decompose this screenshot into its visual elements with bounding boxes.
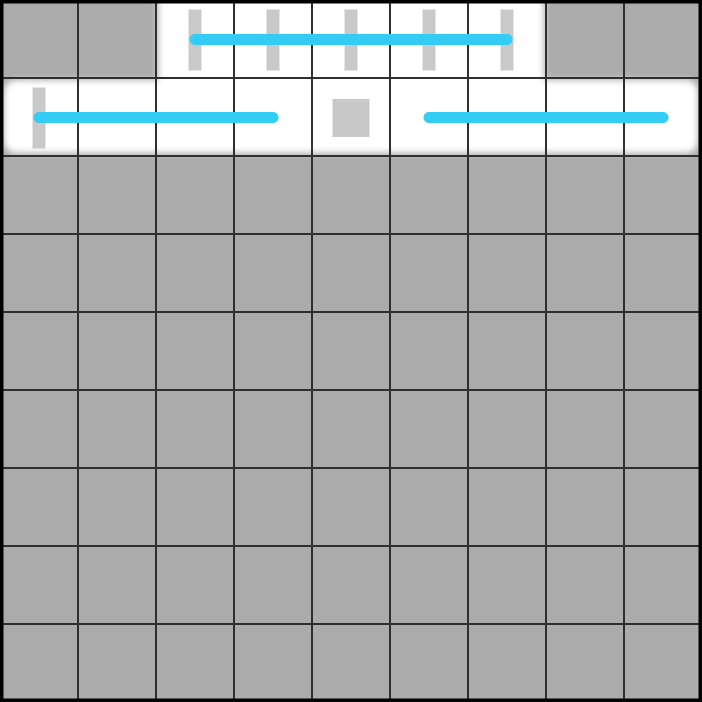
grid-cell[interactable] <box>624 624 702 702</box>
grid-cell[interactable] <box>624 390 702 468</box>
grid-cell[interactable] <box>624 468 702 546</box>
grid-cell[interactable] <box>546 234 624 312</box>
grid-cell[interactable] <box>234 78 312 156</box>
grid-cell[interactable] <box>390 624 468 702</box>
grid-cell[interactable] <box>78 312 156 390</box>
grid-cell[interactable] <box>78 0 156 78</box>
grid-cell[interactable] <box>624 156 702 234</box>
grid-cell[interactable] <box>0 312 78 390</box>
grid-cell[interactable] <box>234 390 312 468</box>
grid-cell[interactable] <box>546 468 624 546</box>
grid-cell[interactable] <box>312 78 390 156</box>
grid-cell[interactable] <box>624 234 702 312</box>
grid-cell[interactable] <box>156 390 234 468</box>
grid-cell[interactable] <box>312 234 390 312</box>
grid-cell[interactable] <box>624 0 702 78</box>
grid-cell[interactable] <box>624 546 702 624</box>
grid-cell[interactable] <box>78 156 156 234</box>
grid-cell[interactable] <box>156 546 234 624</box>
grid-cell[interactable] <box>156 312 234 390</box>
grid-cell[interactable] <box>78 624 156 702</box>
puzzle-window <box>0 0 702 702</box>
grid-cell[interactable] <box>234 234 312 312</box>
grid-cell[interactable] <box>546 78 624 156</box>
grid-cell[interactable] <box>156 468 234 546</box>
grid-cell[interactable] <box>468 78 546 156</box>
grid-cell[interactable] <box>0 468 78 546</box>
grid-cell[interactable] <box>0 546 78 624</box>
grid-cell[interactable] <box>156 624 234 702</box>
grid-cell[interactable] <box>624 312 702 390</box>
grid-cell[interactable] <box>156 78 234 156</box>
grid-cell[interactable] <box>78 234 156 312</box>
grid-cell[interactable] <box>0 390 78 468</box>
grid-cell[interactable] <box>468 546 546 624</box>
grid-cell[interactable] <box>546 546 624 624</box>
grid-cell[interactable] <box>468 624 546 702</box>
grid-cell[interactable] <box>0 78 78 156</box>
grid-cell[interactable] <box>390 156 468 234</box>
grid-cell[interactable] <box>234 312 312 390</box>
grid-cell[interactable] <box>468 468 546 546</box>
puzzle-board[interactable] <box>0 0 702 702</box>
grid-cell[interactable] <box>390 234 468 312</box>
grid-cell[interactable] <box>390 312 468 390</box>
grid-cell[interactable] <box>234 156 312 234</box>
grid-cell[interactable] <box>468 390 546 468</box>
grid-cell[interactable] <box>546 0 624 78</box>
grid-cell[interactable] <box>546 624 624 702</box>
grid-cell[interactable] <box>0 156 78 234</box>
grid-cell[interactable] <box>390 390 468 468</box>
grid-cell[interactable] <box>546 390 624 468</box>
grid-cell[interactable] <box>156 156 234 234</box>
grid-cell[interactable] <box>0 234 78 312</box>
grid-cell[interactable] <box>78 468 156 546</box>
grid-cell[interactable] <box>312 312 390 390</box>
grid-cell[interactable] <box>312 468 390 546</box>
grid-cell[interactable] <box>78 546 156 624</box>
grid-cell[interactable] <box>624 78 702 156</box>
grid-cell[interactable] <box>390 0 468 78</box>
grid-cell[interactable] <box>234 546 312 624</box>
grid-cell[interactable] <box>468 312 546 390</box>
grid-cell[interactable] <box>234 624 312 702</box>
grid-cell[interactable] <box>468 234 546 312</box>
grid-cell[interactable] <box>312 546 390 624</box>
grid-cell[interactable] <box>156 234 234 312</box>
grid-cell[interactable] <box>312 156 390 234</box>
grid-cell[interactable] <box>0 624 78 702</box>
grid-cell[interactable] <box>468 156 546 234</box>
grid-cell[interactable] <box>234 468 312 546</box>
grid-cell[interactable] <box>546 312 624 390</box>
grid-cell[interactable] <box>312 624 390 702</box>
grid-cell[interactable] <box>390 78 468 156</box>
grid-cell[interactable] <box>234 0 312 78</box>
grid-cell[interactable] <box>390 468 468 546</box>
grid-cell[interactable] <box>546 156 624 234</box>
grid-cell[interactable] <box>468 0 546 78</box>
grid-cell[interactable] <box>312 390 390 468</box>
grid-cell[interactable] <box>0 0 78 78</box>
grid-cell[interactable] <box>390 546 468 624</box>
grid-cell[interactable] <box>78 78 156 156</box>
grid-cell[interactable] <box>312 0 390 78</box>
grid-cell[interactable] <box>156 0 234 78</box>
grid-cell[interactable] <box>78 390 156 468</box>
